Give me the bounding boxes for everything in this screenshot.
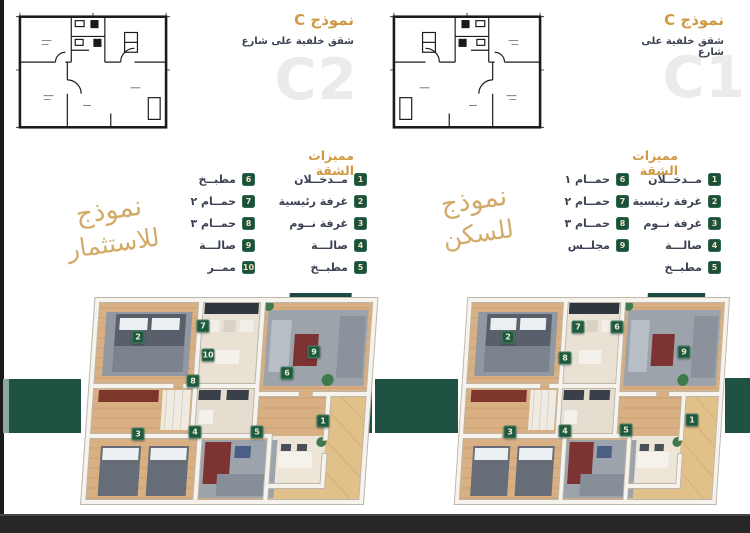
- feature-item: 7حمــام ٢: [564, 195, 629, 208]
- brochure-page: نموذج C شقق خلفية على شارع C2 مميزات الش…: [0, 0, 750, 533]
- room-number-marker: 5: [251, 426, 264, 439]
- room-number-marker: 9: [678, 346, 691, 359]
- left-edge-strip: [0, 0, 4, 514]
- room-number-marker: 7: [197, 320, 210, 333]
- feature-label: مطبــخ: [665, 261, 702, 274]
- room-number-marker: 7: [572, 321, 585, 334]
- ribbon-caption-c1: نموذج للسكن: [412, 176, 540, 257]
- green-ribbon-left: [9, 379, 81, 433]
- watermark-c1: C1: [638, 50, 746, 107]
- room-number-marker: 1: [317, 415, 330, 428]
- room-number-marker: 5: [620, 424, 633, 437]
- feature-label: صالـــة: [665, 239, 702, 252]
- feature-item: 4صالـــة: [665, 239, 721, 252]
- feature-label: مطبــخ: [199, 173, 236, 186]
- feature-item: 6حمــام ١: [564, 173, 629, 186]
- feature-item: 6مطبــخ: [199, 173, 255, 186]
- feature-item: 3غرفة نــوم: [289, 217, 367, 230]
- feature-item: 2غرفة رئيسية: [633, 195, 721, 208]
- feature-number-badge: 10: [242, 261, 255, 274]
- feature-number-badge: 7: [616, 195, 629, 208]
- feature-label: صالـــة: [199, 239, 236, 252]
- feature-number-badge: 2: [708, 195, 721, 208]
- features-column-1-c1: 1مــدخــلان2غرفة رئيسية3غرفة نــوم4صالــ…: [633, 173, 721, 274]
- blueprint-c1: [388, 6, 546, 138]
- feature-item: 1مــدخــلان: [294, 173, 367, 186]
- feature-label: حمــام ٢: [190, 195, 236, 208]
- feature-label: غرفة نــوم: [643, 217, 702, 230]
- render-3d-c2: 27108693451: [78, 286, 398, 518]
- feature-label: غرفة رئيسية: [279, 195, 348, 208]
- room-number-marker: 2: [502, 331, 515, 344]
- ribbon-caption-c2: نموذج للاستثمار: [46, 186, 176, 267]
- feature-item: 5مطبــخ: [311, 261, 367, 274]
- room-number-marker: 3: [132, 428, 145, 441]
- feature-item: 8حمــام ٣: [190, 217, 255, 230]
- feature-label: مطبــخ: [311, 261, 348, 274]
- feature-number-badge: 9: [616, 239, 629, 252]
- room-number-marker: 8: [559, 352, 572, 365]
- room-number-marker: 3: [504, 426, 517, 439]
- feature-number-badge: 1: [354, 173, 367, 186]
- feature-item: 1مــدخــلان: [648, 173, 721, 186]
- watermark-c2: C2: [256, 52, 358, 109]
- feature-label: غرفة نــوم: [289, 217, 348, 230]
- feature-number-badge: 8: [242, 217, 255, 230]
- feature-item: 5مطبــخ: [665, 261, 721, 274]
- feature-number-badge: 6: [242, 173, 255, 186]
- room-number-marker: 6: [281, 367, 294, 380]
- feature-label: مــدخــلان: [648, 173, 702, 186]
- feature-item: 9مجلــس: [568, 239, 629, 252]
- feature-number-badge: 4: [708, 239, 721, 252]
- room-number-marker: 6: [611, 321, 624, 334]
- feature-label: حمــام ٢: [564, 195, 610, 208]
- room-number-marker: 2: [132, 331, 145, 344]
- feature-label: مــدخــلان: [294, 173, 348, 186]
- features-column-2-c2: 6مطبــخ7حمــام ٢8حمــام ٣9صالـــة10ممــر: [190, 173, 255, 274]
- feature-label: ممــر: [207, 261, 236, 274]
- feature-number-badge: 3: [354, 217, 367, 230]
- feature-item: 4صالـــة: [311, 239, 367, 252]
- feature-number-badge: 2: [354, 195, 367, 208]
- feature-number-badge: 9: [242, 239, 255, 252]
- room-number-marker: 1: [686, 414, 699, 427]
- model-title-c1: نموذج C: [620, 11, 724, 29]
- feature-item: 2غرفة رئيسية: [279, 195, 367, 208]
- feature-number-badge: 5: [708, 261, 721, 274]
- model-subtitle-c2: شقق خلفية على شارع: [240, 36, 354, 47]
- room-number-marker: 10: [202, 349, 215, 362]
- render-3d-c1-art: [452, 286, 748, 518]
- feature-item: 3غرفة نــوم: [643, 217, 721, 230]
- feature-number-badge: 8: [616, 217, 629, 230]
- room-number-marker: 4: [189, 426, 202, 439]
- feature-number-badge: 3: [708, 217, 721, 230]
- feature-label: غرفة رئيسية: [633, 195, 702, 208]
- features-column-2-c1: 6حمــام ١7حمــام ٢8حمــام ٣9مجلــس: [564, 173, 629, 252]
- feature-number-badge: 7: [242, 195, 255, 208]
- room-number-marker: 4: [559, 425, 572, 438]
- feature-item: 8حمــام ٣: [564, 217, 629, 230]
- feature-label: حمــام ١: [564, 173, 610, 186]
- features-column-1-c2: 1مــدخــلان2غرفة رئيسية3غرفة نــوم4صالــ…: [279, 173, 367, 274]
- room-number-marker: 8: [187, 375, 200, 388]
- feature-number-badge: 1: [708, 173, 721, 186]
- model-title-c2: نموذج C: [250, 11, 354, 29]
- feature-label: مجلــس: [568, 239, 610, 252]
- feature-item: 9صالـــة: [199, 239, 255, 252]
- feature-label: صالـــة: [311, 239, 348, 252]
- feature-item: 10ممــر: [207, 261, 255, 274]
- room-number-marker: 9: [308, 346, 321, 359]
- feature-label: حمــام ٣: [190, 217, 236, 230]
- feature-item: 7حمــام ٢: [190, 195, 255, 208]
- feature-number-badge: 6: [616, 173, 629, 186]
- feature-number-badge: 5: [354, 261, 367, 274]
- render-3d-c2-art: [78, 286, 398, 518]
- blueprint-c2: [14, 6, 172, 138]
- render-3d-c1: 276893451: [452, 286, 748, 518]
- feature-number-badge: 4: [354, 239, 367, 252]
- feature-label: حمــام ٣: [564, 217, 610, 230]
